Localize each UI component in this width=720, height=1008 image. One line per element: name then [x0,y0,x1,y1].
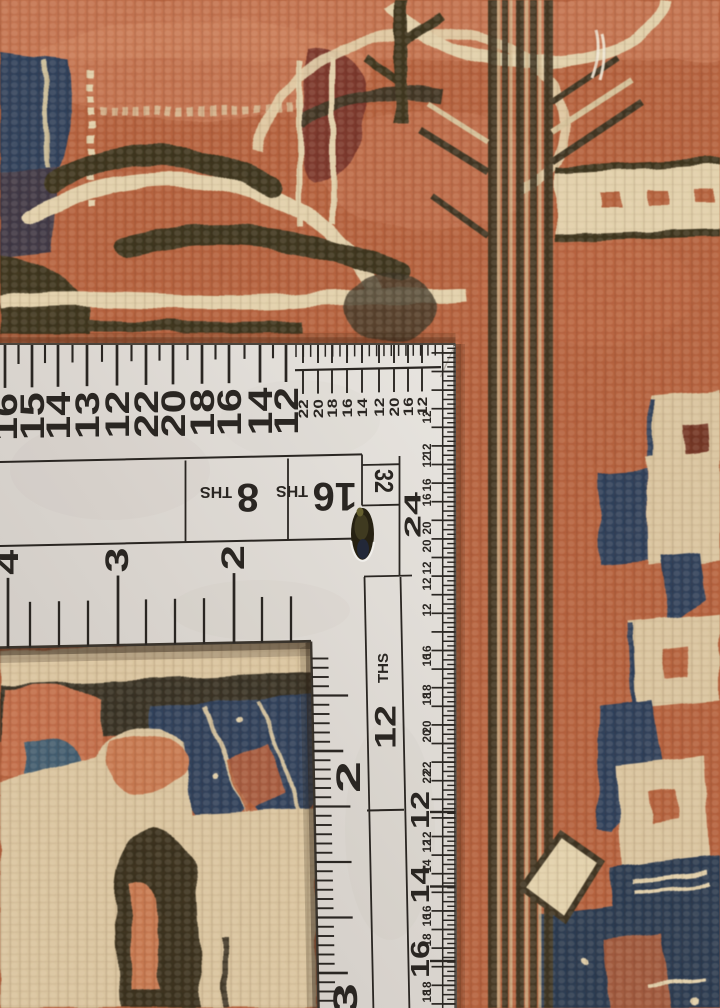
svg-text:2: 2 [215,545,251,570]
svg-text:2: 2 [330,761,368,793]
svg-text:18: 18 [422,692,434,706]
svg-text:20: 20 [422,522,434,535]
svg-text:14: 14 [354,398,370,417]
svg-text:3: 3 [99,548,135,573]
svg-text:20: 20 [422,540,434,553]
svg-text:18: 18 [422,933,434,947]
svg-text:16: 16 [422,914,434,927]
svg-text:16: 16 [422,494,434,507]
svg-text:THS: THS [200,483,232,500]
svg-text:18: 18 [422,989,434,1003]
svg-text:12: 12 [422,840,434,853]
svg-text:THS: THS [276,482,308,499]
svg-text:12: 12 [405,791,435,829]
svg-text:THS: THS [375,653,392,683]
svg-text:22: 22 [295,399,311,418]
svg-text:16: 16 [422,479,434,492]
svg-text:16: 16 [339,398,355,417]
svg-text:4: 4 [0,550,25,575]
svg-text:14: 14 [422,859,434,873]
svg-text:18: 18 [324,399,340,418]
svg-text:20: 20 [422,730,434,743]
svg-text:3: 3 [327,983,365,1008]
svg-text:16: 16 [313,474,358,518]
svg-text:12: 12 [422,562,434,575]
svg-text:12: 12 [370,705,403,749]
svg-text:16: 16 [422,654,434,667]
svg-text:12: 12 [371,398,387,417]
svg-text:8: 8 [237,475,259,519]
svg-text:12: 12 [422,578,434,591]
svg-text:22: 22 [422,771,434,784]
svg-text:12: 12 [422,455,434,468]
svg-text:12: 12 [422,411,434,424]
svg-text:12: 12 [422,604,434,617]
svg-text:32: 32 [369,469,399,493]
